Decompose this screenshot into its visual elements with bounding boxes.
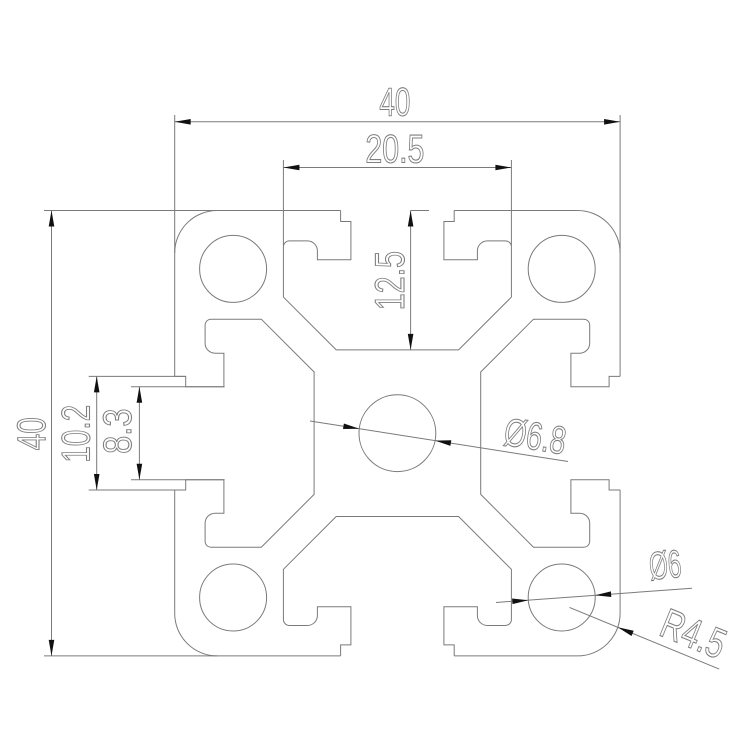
svg-text:8.3: 8.3 xyxy=(96,409,140,454)
svg-text:20.5: 20.5 xyxy=(365,128,424,172)
svg-text:10.2: 10.2 xyxy=(55,405,99,463)
svg-text:40: 40 xyxy=(10,417,54,450)
svg-text:Ø6: Ø6 xyxy=(647,543,683,589)
svg-text:12.5: 12.5 xyxy=(366,251,413,310)
svg-text:40: 40 xyxy=(379,81,410,125)
